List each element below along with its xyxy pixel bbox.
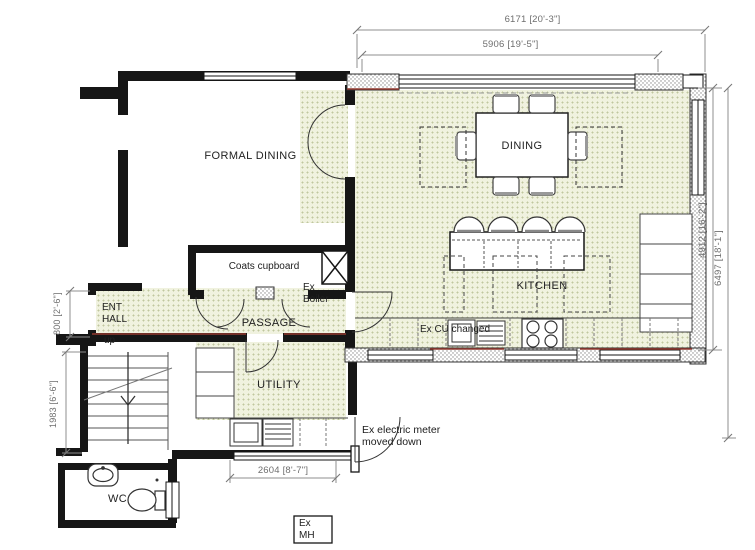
ent-hall-line1: ENT (102, 302, 138, 314)
hob (522, 319, 563, 348)
room-label-wc: WC (108, 493, 136, 506)
dim-bottom-utility: 2604 [8'-7"] (238, 466, 328, 477)
ent-hall-line2: HALL (102, 314, 138, 326)
room-label-dining: DINING (488, 140, 556, 153)
coats-cupboard-label: Coats cupboard (216, 261, 312, 273)
stairs (84, 352, 172, 450)
manhole-line1: Ex (299, 518, 315, 530)
bar-stools (454, 217, 585, 232)
boiler-line2: Boiler (303, 294, 329, 306)
kitchen-door (352, 292, 392, 332)
utility-sink (230, 419, 293, 446)
floor-plan: FORMAL DINING DINING KITCHEN ENT HALL up… (0, 0, 755, 550)
boiler-line1: Ex (303, 282, 329, 294)
hall-door-arc (196, 297, 228, 329)
boiler-symbol (322, 251, 348, 284)
boiler-label: Ex Boiler (303, 282, 329, 305)
meter-line1: Ex electric meter (362, 424, 440, 436)
cu-note: Ex CU changed (420, 324, 510, 336)
dim-left-door: 800 [2'-6"] (52, 283, 64, 345)
meter-note: Ex electric meter moved down (362, 424, 440, 448)
room-label-passage: PASSAGE (236, 317, 302, 330)
manhole-line2: MH (299, 530, 315, 542)
room-label-kitchen: KITCHEN (506, 280, 578, 293)
kitchen-island (450, 232, 584, 270)
dim-left-stairs: 1983 [6'-6"] (48, 352, 60, 456)
manhole-label: Ex MH (299, 518, 315, 541)
double-door-arc (308, 105, 345, 142)
room-label-utility: UTILITY (250, 379, 308, 392)
room-label-formal-dining: FORMAL DINING (188, 150, 313, 163)
meter-line2: moved down (362, 436, 440, 448)
new-wall-accents (92, 89, 692, 349)
stairs-up-label: up (104, 335, 134, 347)
utility-units (196, 348, 348, 448)
dim-top-inner: 5906 [19'-5"] (438, 40, 583, 51)
kitchen-tall-units (640, 214, 692, 332)
plan-linework (0, 0, 755, 550)
dim-right-inner: 4912 [16'-2"] (698, 150, 710, 310)
stairs-up-arrow (121, 352, 135, 444)
utility-door (246, 340, 278, 372)
dimension-ticks (62, 26, 732, 482)
dim-right-outer: 6497 [18'-1"] (714, 178, 726, 338)
dimension-lines (62, 26, 736, 483)
basin (88, 464, 118, 486)
double-door-arc (308, 142, 345, 179)
room-label-ent-hall: ENT HALL (102, 302, 138, 325)
dim-top-outer: 6171 [20'-3"] (455, 15, 610, 26)
